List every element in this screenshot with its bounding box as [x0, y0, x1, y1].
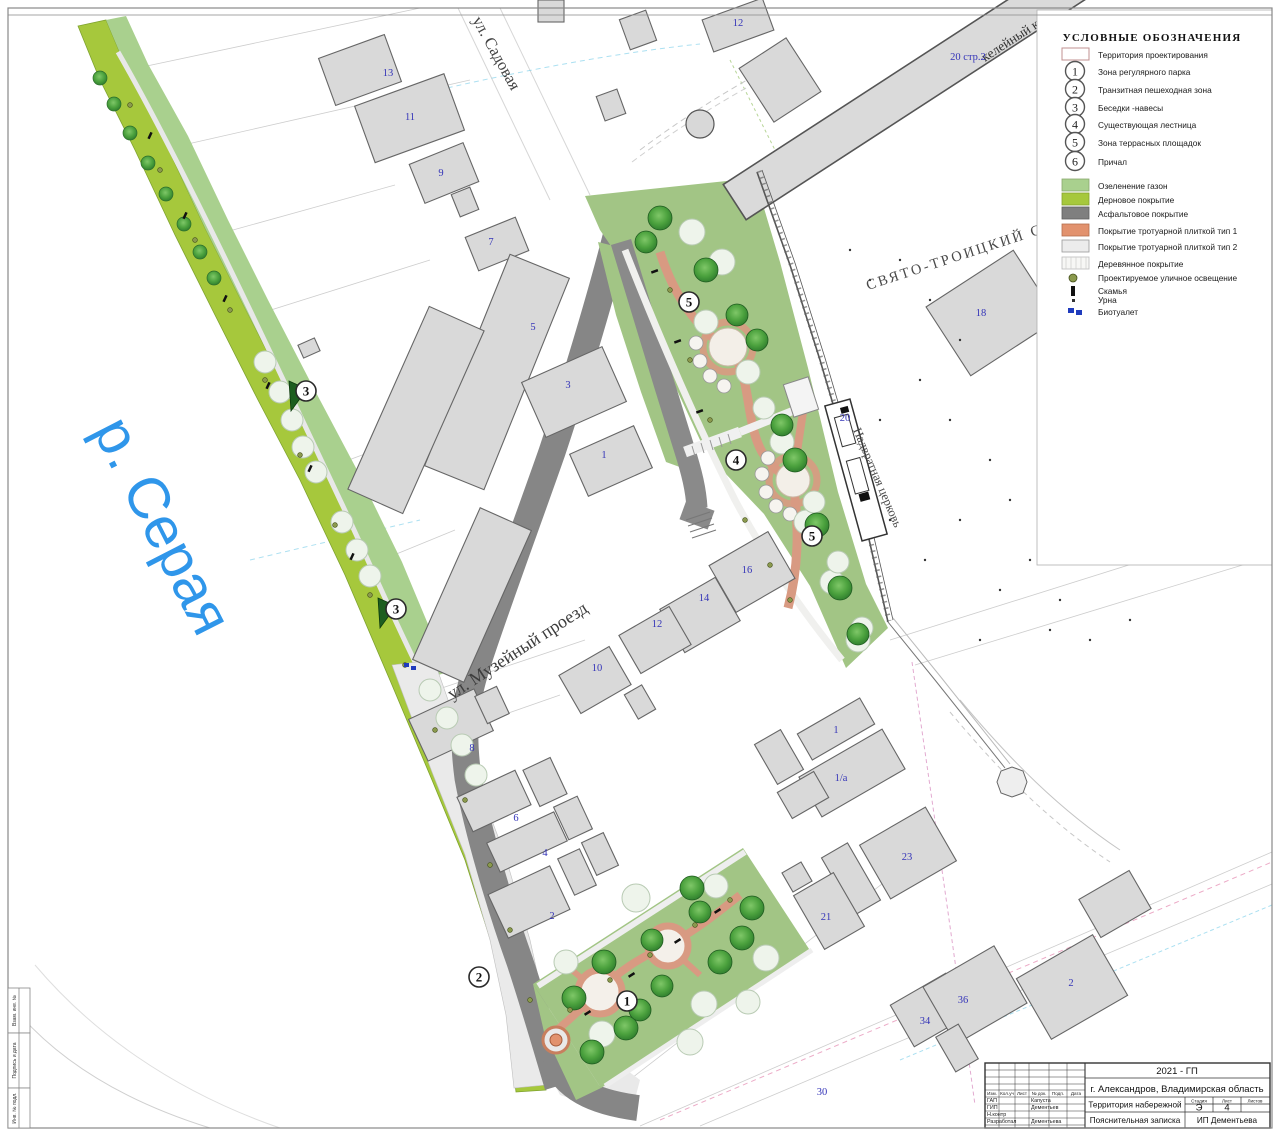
svg-text:Причал: Причал [1098, 157, 1127, 167]
svg-text:Подп.: Подп. [1052, 1091, 1064, 1096]
doc-type: Пояснительная записка [1090, 1116, 1181, 1125]
urn-icon [1072, 299, 1075, 302]
svg-text:Озеленение газон: Озеленение газон [1098, 181, 1168, 191]
zone-marker: 1 [617, 991, 637, 1011]
building-number: 11 [405, 112, 415, 123]
legend-panel: УСЛОВНЫЕ ОБОЗНАЧЕНИЯ Территория проектир… [1037, 10, 1272, 565]
corner-tower [686, 110, 714, 138]
building-number: 4 [542, 848, 548, 859]
building-number: 2 [1068, 978, 1073, 989]
building-number: 10 [592, 663, 603, 674]
svg-text:Изм.: Изм. [987, 1091, 997, 1096]
svg-text:Лист: Лист [1017, 1091, 1028, 1096]
building-number: 8 [469, 743, 474, 754]
project-code: 2021 - ГП [1156, 1066, 1198, 1077]
svg-text:Дементьев: Дементьев [1031, 1105, 1059, 1111]
legend-territory-row: Территория проектирования [1062, 48, 1208, 60]
zone-marker: 4 [726, 450, 746, 470]
drawing-sheet: р. Серая ул. Садовая ул. Музейный проезд… [0, 0, 1280, 1136]
svg-text:5: 5 [1072, 136, 1078, 150]
site-plan-canvas: р. Серая ул. Садовая ул. Музейный проезд… [0, 0, 1280, 1136]
svg-text:Дата: Дата [1071, 1091, 1082, 1096]
building-number: 2 [549, 911, 554, 922]
legend-title: УСЛОВНЫЕ ОБОЗНАЧЕНИЯ [1063, 32, 1242, 44]
svg-text:5: 5 [686, 295, 693, 310]
building-number: 16 [742, 565, 753, 576]
building-number: 12 [652, 619, 663, 630]
svg-text:2: 2 [476, 970, 483, 985]
building-number: 21 [821, 912, 832, 923]
svg-text:6: 6 [1072, 155, 1078, 169]
zone-marker: 5 [802, 526, 822, 546]
svg-text:Капуста: Капуста [1031, 1098, 1051, 1104]
svg-text:4: 4 [733, 453, 740, 468]
project-city: г. Александров, Владимирская область [1090, 1084, 1263, 1095]
building-number: 1/a [835, 773, 848, 784]
svg-text:Зона регулярного парка: Зона регулярного парка [1098, 67, 1191, 77]
terrace-circle-1 [709, 328, 747, 366]
lighting-icon [1069, 274, 1077, 282]
svg-text:Дерновое покрытие: Дерновое покрытие [1098, 195, 1175, 205]
svg-text:Покрытие тротуарной плиткой ти: Покрытие тротуарной плиткой тип 1 [1098, 226, 1238, 236]
sheet-value: 4 [1224, 1103, 1229, 1114]
building-number: 6 [513, 813, 518, 824]
svg-text:5: 5 [809, 529, 816, 544]
svg-text:Н.контр: Н.контр [987, 1112, 1006, 1118]
svg-text:3: 3 [1072, 101, 1078, 115]
svg-text:Кол.уч: Кол.уч [1000, 1091, 1014, 1096]
company-name: ИП Дементьева [1197, 1116, 1258, 1125]
svg-text:Деревянное покрытие: Деревянное покрытие [1098, 259, 1184, 269]
svg-text:4: 4 [1072, 118, 1078, 132]
frame-label: Подпись и дата [12, 1042, 18, 1078]
building-number: 1 [833, 725, 838, 736]
frame-label: Инв. № подл. [12, 1092, 18, 1123]
building-number: 34 [920, 1016, 931, 1027]
building-number: 14 [699, 593, 710, 604]
svg-text:Дементьева: Дементьева [1031, 1119, 1061, 1125]
building-number: 12 [733, 18, 744, 29]
svg-text:1: 1 [624, 994, 631, 1009]
building-number: 1 [601, 450, 606, 461]
svg-text:ГИП: ГИП [987, 1105, 998, 1111]
zone-marker: 2 [469, 967, 489, 987]
zone-marker: 3 [296, 381, 316, 401]
project-name: Территория набережной [1088, 1101, 1181, 1110]
svg-text:Проектируемое уличное освещени: Проектируемое уличное освещение [1098, 273, 1238, 283]
svg-text:Урна: Урна [1098, 295, 1117, 305]
svg-text:3: 3 [393, 602, 400, 617]
building-number: 9 [438, 168, 443, 179]
legend-territory-label: Территория проектирования [1098, 50, 1208, 60]
svg-text:ГАП: ГАП [987, 1098, 997, 1104]
svg-text:1: 1 [1072, 65, 1078, 79]
svg-text:Асфальтовое покрытие: Асфальтовое покрытие [1098, 209, 1189, 219]
svg-text:Зона террасных площадок: Зона террасных площадок [1098, 138, 1201, 148]
svg-text:№ док.: № док. [1032, 1091, 1047, 1096]
building-number: 23 [902, 852, 913, 863]
building-number: 20 [840, 413, 851, 424]
svg-text:3: 3 [303, 384, 310, 399]
svg-text:Существующая лестница: Существующая лестница [1098, 120, 1197, 130]
zone-marker: 5 [679, 292, 699, 312]
building-number: 3 [565, 380, 570, 391]
svg-text:2: 2 [1072, 83, 1078, 97]
building-number: 20 стр.2 [950, 52, 986, 63]
building-number: 30 [817, 1087, 828, 1098]
svg-text:Биотуалет: Биотуалет [1098, 307, 1138, 317]
building-number: 18 [976, 308, 987, 319]
svg-text:Разработал: Разработал [987, 1119, 1016, 1125]
building-number: 5 [530, 322, 535, 333]
svg-text:Транзитная пешеходная зона: Транзитная пешеходная зона [1098, 85, 1212, 95]
building-number: 7 [488, 237, 493, 248]
svg-text:Листов: Листов [1248, 1099, 1263, 1104]
chapel-octagon [997, 767, 1027, 797]
building-number: 13 [383, 68, 394, 79]
stage-value: Э [1196, 1103, 1203, 1114]
svg-text:Беседки -навесы: Беседки -навесы [1098, 103, 1163, 113]
zone-marker: 3 [386, 599, 406, 619]
frame-label: Взам. инв. № [12, 995, 18, 1026]
bench-icon [1071, 286, 1075, 296]
building-number: 36 [958, 995, 969, 1006]
svg-text:Покрытие тротуарной плиткой ти: Покрытие тротуарной плиткой тип 2 [1098, 242, 1238, 252]
